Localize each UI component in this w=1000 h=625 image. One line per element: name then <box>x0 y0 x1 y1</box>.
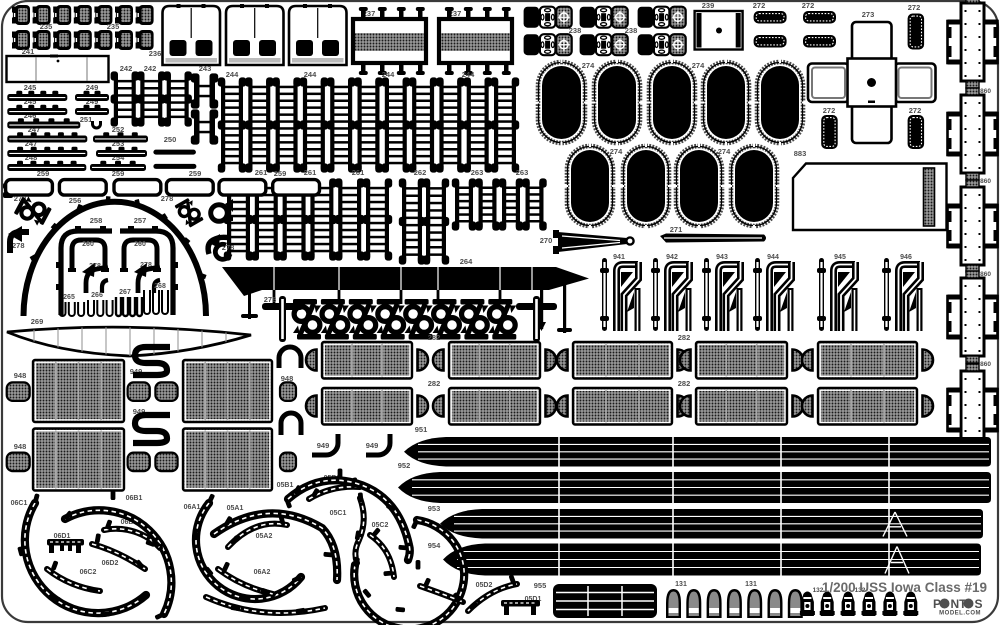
svg-text:946: 946 <box>900 254 912 261</box>
svg-text:243: 243 <box>199 64 212 73</box>
svg-text:251: 251 <box>80 115 93 124</box>
svg-text:256: 256 <box>69 196 82 205</box>
svg-text:883: 883 <box>794 149 807 158</box>
svg-text:265: 265 <box>63 294 75 301</box>
svg-text:278: 278 <box>161 194 174 203</box>
svg-text:258: 258 <box>90 216 103 225</box>
svg-text:236: 236 <box>149 49 162 58</box>
svg-text:282: 282 <box>428 379 441 388</box>
svg-text:272: 272 <box>802 1 815 10</box>
svg-text:259: 259 <box>189 169 202 178</box>
svg-text:262: 262 <box>414 168 427 177</box>
svg-text:269: 269 <box>31 317 44 326</box>
svg-text:948: 948 <box>14 442 27 451</box>
svg-text:241: 241 <box>22 47 35 56</box>
svg-text:272: 272 <box>909 106 922 115</box>
svg-text:272: 272 <box>908 3 921 12</box>
svg-text:05A1: 05A1 <box>227 505 244 512</box>
svg-text:274: 274 <box>582 61 595 70</box>
svg-text:259: 259 <box>37 169 50 178</box>
svg-text:951: 951 <box>415 425 428 434</box>
svg-text:249: 249 <box>86 83 99 92</box>
svg-text:05D2: 05D2 <box>476 582 493 589</box>
svg-text:273: 273 <box>862 10 875 19</box>
svg-text:06D2: 06D2 <box>102 560 119 567</box>
svg-text:05C1: 05C1 <box>330 510 347 517</box>
svg-text:263: 263 <box>516 168 529 177</box>
svg-text:260: 260 <box>82 241 94 248</box>
svg-text:261: 261 <box>304 168 317 177</box>
svg-text:274: 274 <box>692 61 705 70</box>
svg-text:945: 945 <box>834 254 846 261</box>
svg-text:860: 860 <box>980 361 991 368</box>
svg-text:955: 955 <box>534 581 547 590</box>
svg-text:282: 282 <box>428 333 441 342</box>
svg-text:948: 948 <box>14 371 27 380</box>
svg-text:860: 860 <box>980 88 991 95</box>
svg-text:943: 943 <box>716 254 728 261</box>
svg-text:953: 953 <box>428 504 441 513</box>
svg-text:282: 282 <box>678 333 691 342</box>
svg-text:250: 250 <box>164 135 177 144</box>
svg-text:06A2: 06A2 <box>254 569 271 576</box>
svg-text:272: 272 <box>753 1 766 10</box>
svg-text:244: 244 <box>226 70 239 79</box>
svg-text:05C2: 05C2 <box>372 522 389 529</box>
svg-text:952: 952 <box>398 461 411 470</box>
svg-text:06C1: 06C1 <box>11 500 28 507</box>
svg-text:944: 944 <box>767 254 779 261</box>
svg-text:264: 264 <box>460 257 473 266</box>
svg-text:MODEL.COM: MODEL.COM <box>939 611 981 617</box>
svg-text:860: 860 <box>980 178 991 185</box>
svg-text:941: 941 <box>613 254 625 261</box>
svg-text:1/200 USS Iowa Class #19: 1/200 USS Iowa Class #19 <box>822 580 987 595</box>
svg-text:272: 272 <box>823 106 836 115</box>
svg-text:954: 954 <box>428 541 441 550</box>
svg-text:260: 260 <box>134 241 146 248</box>
svg-text:949: 949 <box>317 441 330 450</box>
svg-text:242: 242 <box>144 64 157 73</box>
svg-text:263: 263 <box>471 168 484 177</box>
svg-text:239: 239 <box>702 1 715 10</box>
svg-text:278: 278 <box>12 241 25 250</box>
svg-text:244: 244 <box>304 70 317 79</box>
svg-text:242: 242 <box>120 64 133 73</box>
svg-text:05B1: 05B1 <box>277 482 294 489</box>
svg-text:06C2: 06C2 <box>80 569 97 576</box>
svg-text:05A2: 05A2 <box>256 533 273 540</box>
svg-text:261: 261 <box>255 168 268 177</box>
svg-text:266: 266 <box>91 292 103 299</box>
svg-text:235: 235 <box>107 22 120 31</box>
svg-text:131: 131 <box>675 581 687 588</box>
svg-text:131: 131 <box>745 581 757 588</box>
svg-text:259: 259 <box>274 169 287 178</box>
svg-text:271: 271 <box>670 225 683 234</box>
svg-text:235: 235 <box>40 22 53 31</box>
svg-text:259: 259 <box>112 169 125 178</box>
svg-text:942: 942 <box>666 254 678 261</box>
svg-text:245: 245 <box>24 83 37 92</box>
svg-text:06A1: 06A1 <box>184 504 201 511</box>
svg-text:267: 267 <box>119 289 131 296</box>
svg-text:06B1: 06B1 <box>126 495 143 502</box>
svg-text:270: 270 <box>540 236 553 245</box>
svg-text:278: 278 <box>264 295 277 304</box>
svg-text:282: 282 <box>678 379 691 388</box>
svg-text:06D1: 06D1 <box>54 533 71 540</box>
svg-text:268: 268 <box>154 283 166 290</box>
svg-text:274: 274 <box>610 147 623 156</box>
svg-text:S: S <box>975 597 983 611</box>
svg-text:261: 261 <box>352 168 365 177</box>
svg-text:257: 257 <box>134 216 147 225</box>
svg-text:860: 860 <box>980 271 991 278</box>
svg-text:949: 949 <box>366 441 379 450</box>
